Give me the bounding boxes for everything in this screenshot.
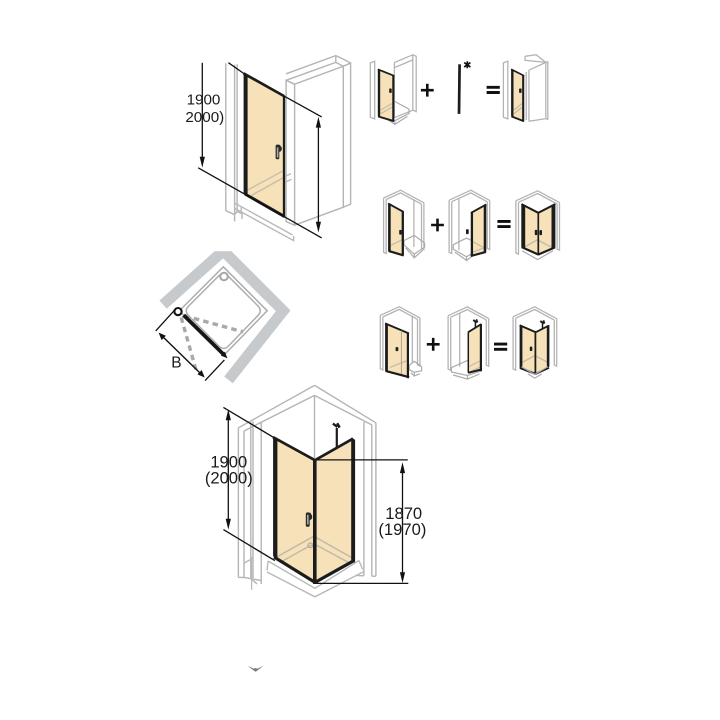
- svg-text:2000): 2000): [185, 109, 224, 126]
- svg-text:B: B: [171, 354, 181, 371]
- svg-text:(1970): (1970): [378, 520, 426, 539]
- svg-text:1900: 1900: [187, 92, 221, 109]
- svg-text:(2000): (2000): [205, 469, 253, 488]
